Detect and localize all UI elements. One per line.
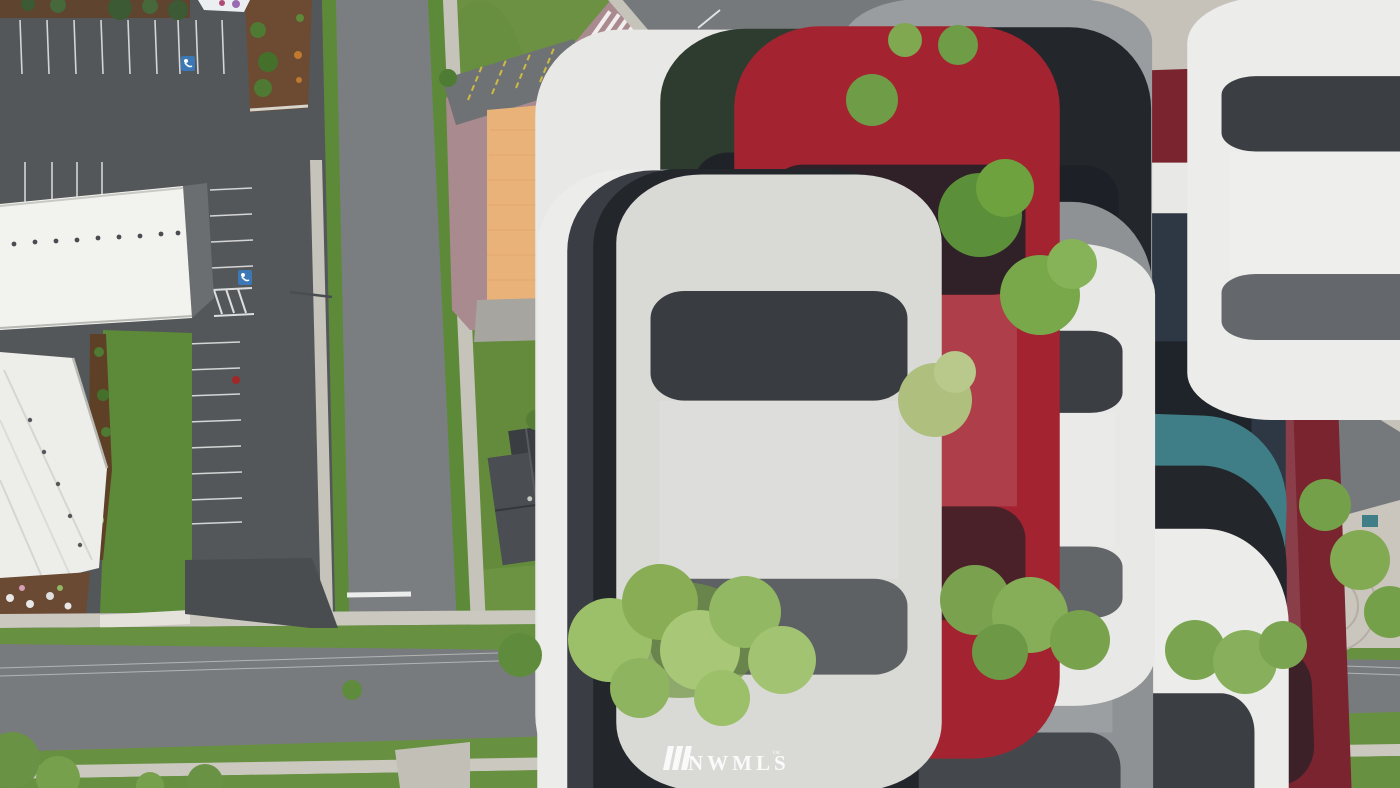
tree-canopy	[748, 626, 816, 694]
aerial-photo: NWMLS ™	[0, 0, 1400, 788]
handicap-stall-symbol	[238, 270, 252, 285]
tree-canopy	[439, 69, 457, 87]
tree-canopy	[934, 351, 976, 393]
tree-canopy	[168, 0, 188, 20]
aerial-photo-viewport: NWMLS ™	[0, 0, 1400, 788]
driveway-apron	[395, 742, 470, 788]
tree-canopy	[1259, 621, 1307, 669]
tree-canopy	[888, 23, 922, 57]
tree-canopy	[1050, 610, 1110, 670]
handicap-stall-symbol	[181, 56, 195, 71]
tree-canopy	[938, 25, 978, 65]
tree-canopy	[1047, 239, 1097, 289]
tree-canopy	[1330, 530, 1390, 590]
tree-canopy	[498, 633, 542, 677]
watermark-trademark: ™	[772, 749, 780, 758]
parked-car	[1187, 0, 1400, 420]
tree-canopy	[694, 670, 750, 726]
tree-canopy	[610, 658, 670, 718]
tree-canopy	[342, 680, 362, 700]
tree-canopy	[972, 624, 1028, 680]
dumpster	[1362, 515, 1378, 527]
mulch-flower-bed-southwest	[0, 572, 90, 618]
tree-canopy	[846, 74, 898, 126]
tree-canopy	[976, 159, 1034, 217]
white-warehouse-building-upper	[0, 183, 214, 330]
tree-canopy	[1299, 479, 1351, 531]
